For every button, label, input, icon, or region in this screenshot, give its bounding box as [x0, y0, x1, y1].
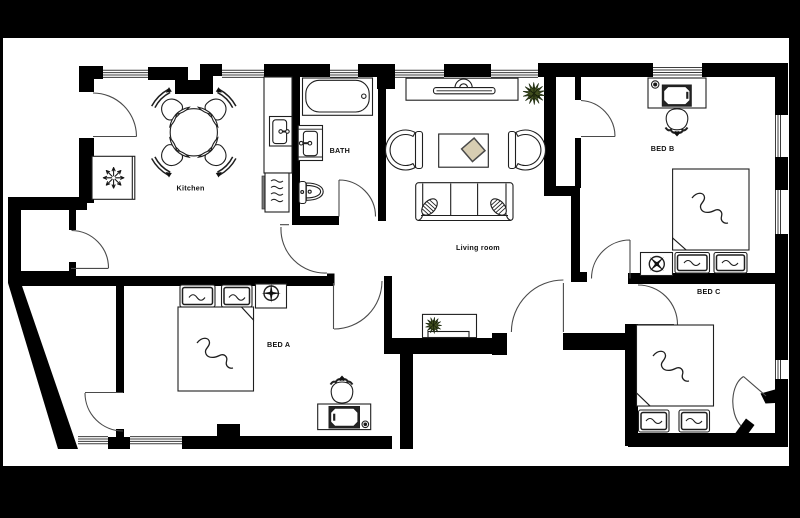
svg-text:BED A: BED A — [267, 340, 290, 349]
svg-text:BATH: BATH — [330, 146, 350, 155]
svg-text:Kitchen: Kitchen — [177, 184, 205, 193]
svg-text:BED C: BED C — [697, 287, 721, 296]
svg-text:BED B: BED B — [651, 144, 675, 153]
svg-text:Living room: Living room — [456, 243, 500, 252]
